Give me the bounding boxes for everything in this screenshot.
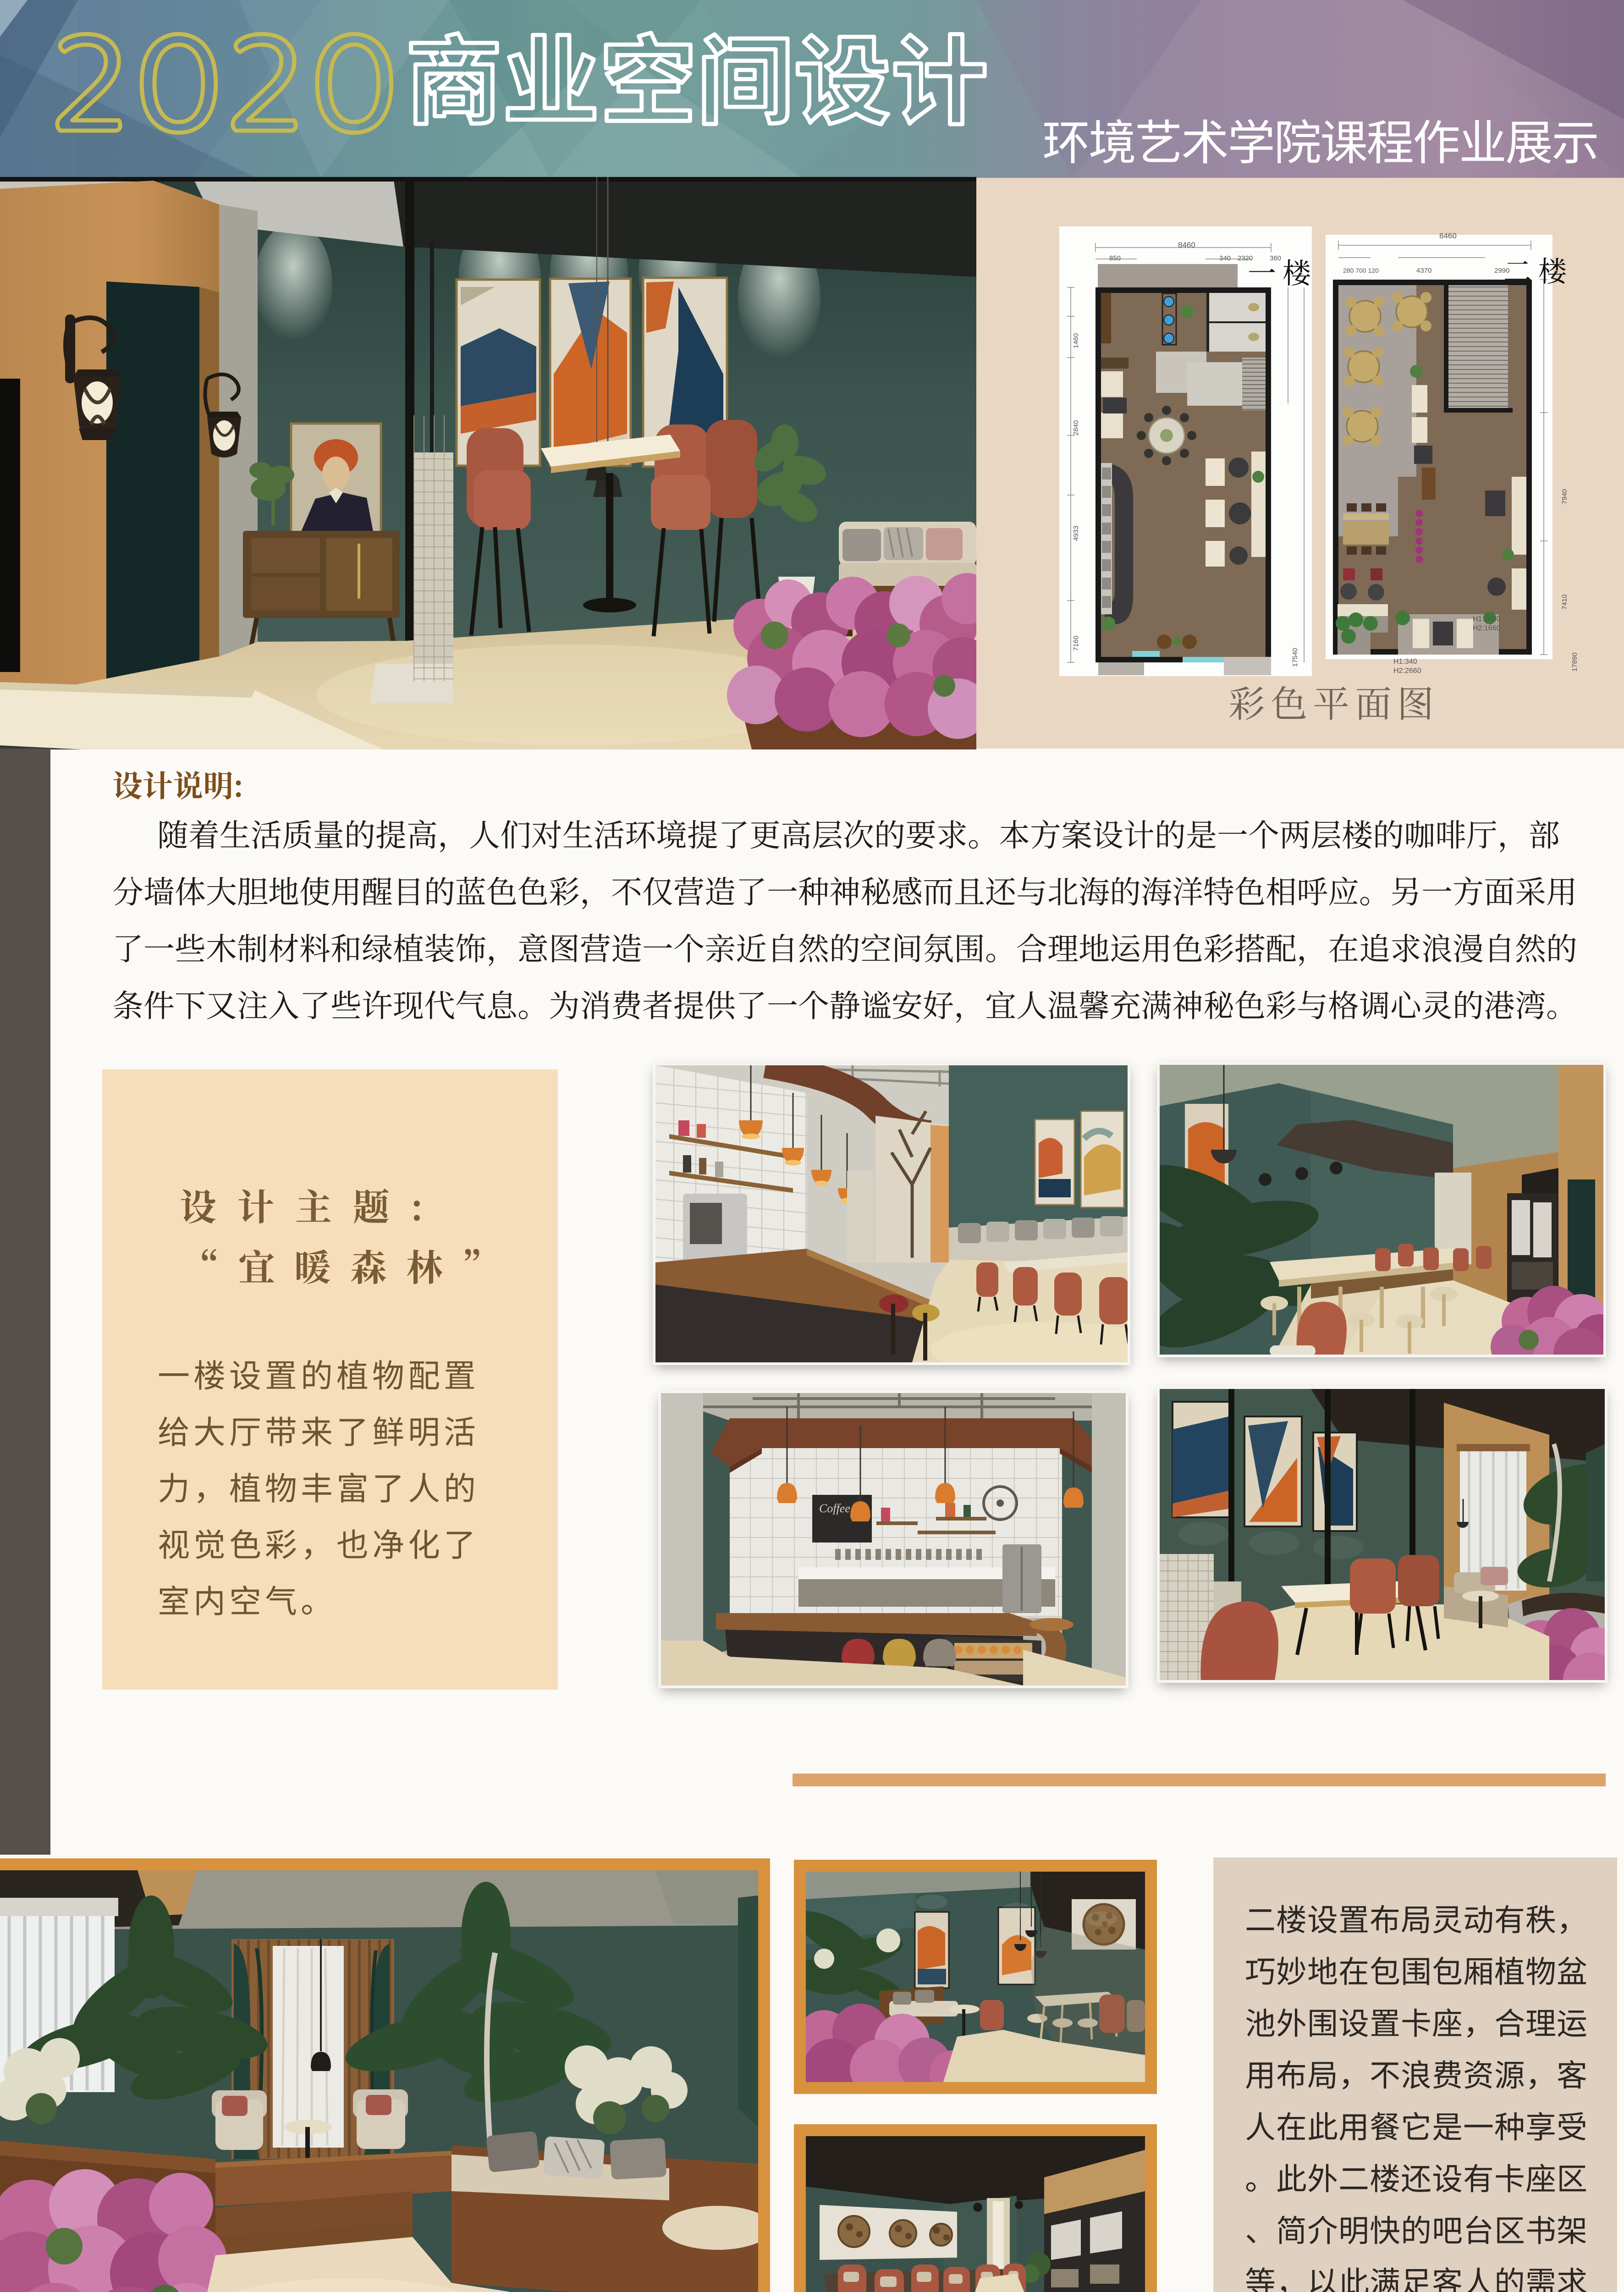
svg-text:7940: 7940 xyxy=(1561,489,1569,504)
svg-text:4370: 4370 xyxy=(1416,267,1431,275)
svg-text:2320: 2320 xyxy=(1238,254,1253,262)
svg-text:17540: 17540 xyxy=(1291,648,1299,667)
svg-text:1460: 1460 xyxy=(1072,333,1080,348)
svg-text:2990: 2990 xyxy=(1494,267,1509,275)
svg-text:7410: 7410 xyxy=(1561,595,1569,610)
svg-text:8460: 8460 xyxy=(1178,241,1195,249)
svg-text:8460: 8460 xyxy=(1439,231,1457,240)
svg-text:2840: 2840 xyxy=(1072,420,1080,435)
svg-text:7160: 7160 xyxy=(1072,636,1080,651)
svg-text:H2:1660: H2:1660 xyxy=(1473,624,1501,632)
svg-text:H1:340: H1:340 xyxy=(1393,658,1417,666)
svg-text:360: 360 xyxy=(1270,254,1281,262)
svg-text:4933: 4933 xyxy=(1072,526,1080,541)
svg-text:850: 850 xyxy=(1109,254,1121,262)
svg-text:280 700 120: 280 700 120 xyxy=(1343,267,1379,274)
svg-text:340: 340 xyxy=(1219,254,1231,262)
svg-text:17890: 17890 xyxy=(1571,652,1579,672)
svg-text:H1:1080: H1:1080 xyxy=(1473,615,1501,623)
svg-text:H2:2660: H2:2660 xyxy=(1393,667,1421,675)
